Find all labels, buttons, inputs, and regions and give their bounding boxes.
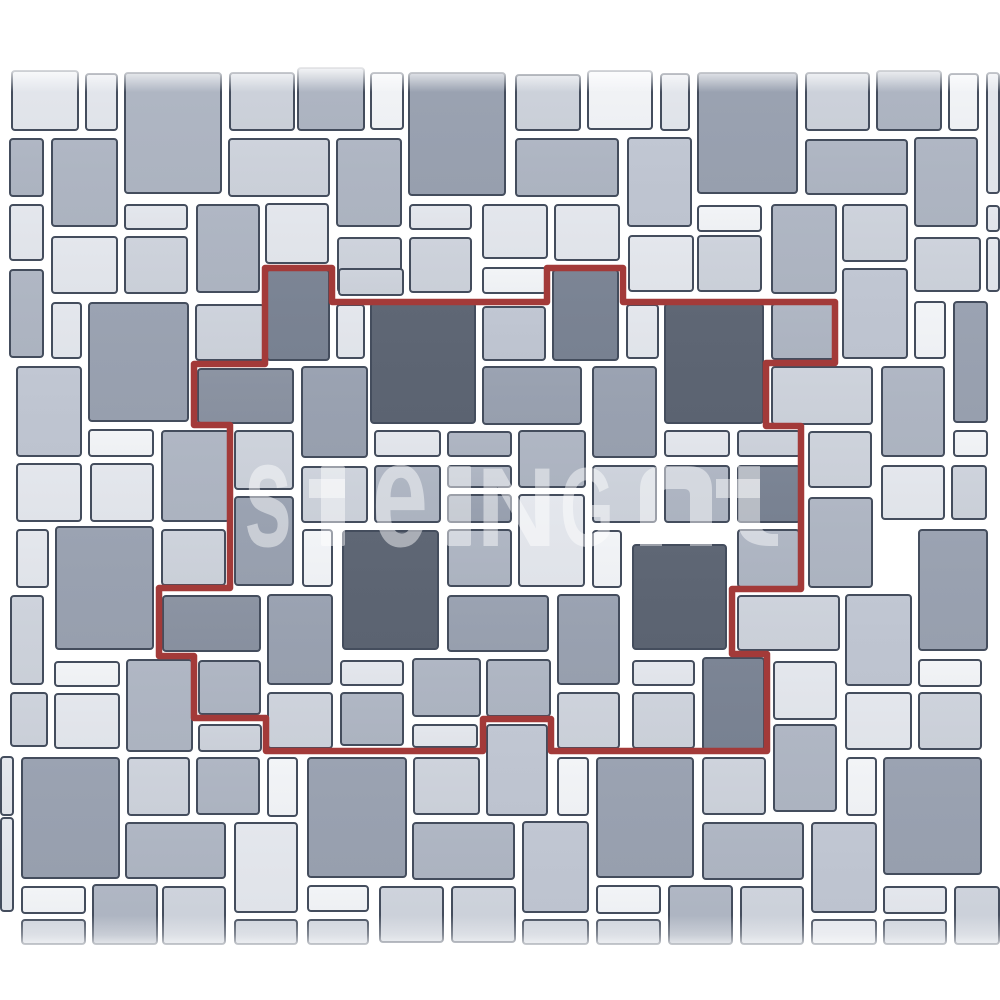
svg-text:N: N <box>476 445 557 570</box>
svg-text:e: e <box>372 409 428 578</box>
svg-text:G: G <box>560 445 614 570</box>
svg-text:s: s <box>244 409 292 578</box>
